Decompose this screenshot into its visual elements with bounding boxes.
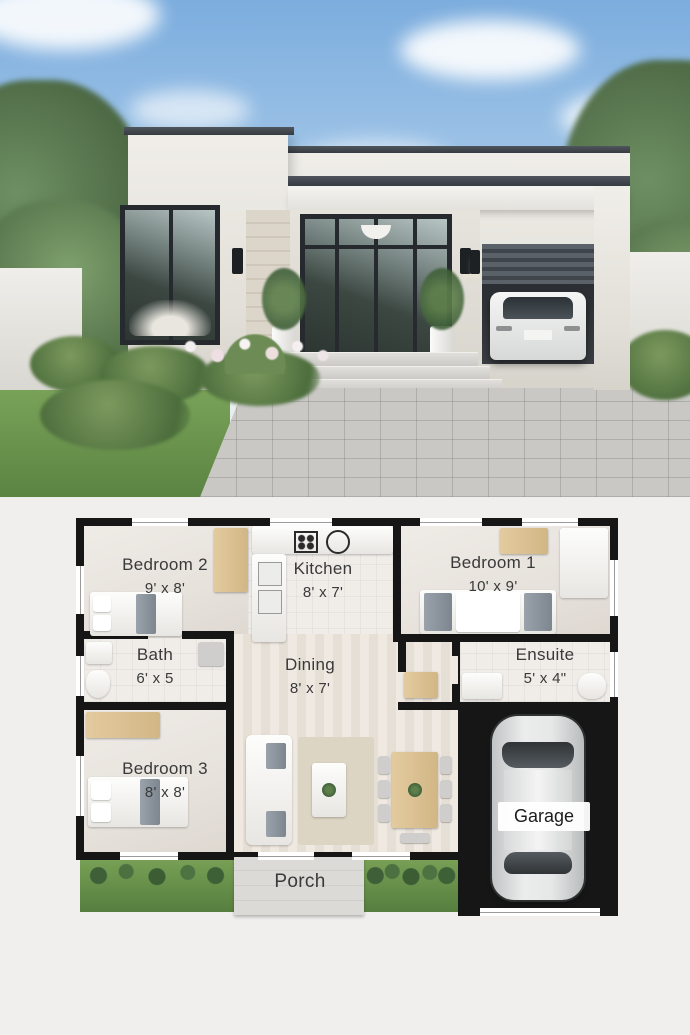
room-name: Dining bbox=[255, 655, 365, 675]
car-taillight bbox=[496, 326, 512, 331]
sink-icon bbox=[326, 530, 350, 554]
room-name: Ensuite bbox=[490, 645, 600, 665]
window bbox=[132, 518, 188, 526]
wall-ensuite-left bbox=[452, 684, 460, 702]
window bbox=[120, 852, 178, 860]
bed-pillow bbox=[93, 596, 111, 612]
car-taillight bbox=[564, 326, 580, 331]
bed-duvet bbox=[456, 592, 520, 632]
bed-pillow-gray bbox=[424, 593, 452, 631]
room-dims: 9' x 8' bbox=[90, 580, 240, 597]
plan-grass-left bbox=[80, 860, 234, 912]
wall-hall-nook bbox=[398, 642, 406, 672]
room-label-dining: Dining 8' x 7' bbox=[255, 655, 365, 697]
table-plant bbox=[322, 783, 336, 797]
window bbox=[610, 652, 618, 697]
room-label-bedroom1: Bedroom 1 10' x 9' bbox=[418, 553, 568, 595]
room-label-bath: Bath 6' x 5 bbox=[100, 645, 210, 687]
room-name: Bath bbox=[100, 645, 210, 665]
dining-table bbox=[392, 752, 438, 828]
room-label-bedroom3: Bedroom 3 8' x 8' bbox=[90, 759, 240, 801]
window bbox=[420, 518, 482, 526]
room-dims: 8' x 7' bbox=[268, 584, 378, 601]
plan-grass-right bbox=[364, 860, 458, 912]
flower-bed bbox=[170, 328, 340, 374]
hedge bbox=[40, 380, 190, 450]
room-name: Bedroom 3 bbox=[90, 759, 240, 779]
window bbox=[270, 518, 332, 526]
dining-chair bbox=[378, 804, 390, 822]
room-label-kitchen: Kitchen 8' x 7' bbox=[268, 559, 378, 601]
room-label-bedroom2: Bedroom 2 9' x 8' bbox=[90, 555, 240, 597]
room-name: Porch bbox=[240, 871, 360, 893]
dining-chair bbox=[440, 780, 452, 798]
door-mullion bbox=[374, 219, 378, 353]
room-dims: 8' x 8' bbox=[90, 784, 240, 801]
car-windshield bbox=[502, 742, 574, 768]
bed bbox=[420, 590, 556, 634]
dining-chair bbox=[378, 756, 390, 774]
dining-chair bbox=[440, 804, 452, 822]
table-plant bbox=[408, 783, 422, 797]
dining-chair bbox=[378, 780, 390, 798]
cloud bbox=[400, 20, 580, 80]
window bbox=[610, 560, 618, 616]
garage-door-plan bbox=[480, 908, 600, 916]
cloud bbox=[0, 0, 160, 50]
car-license-plate bbox=[524, 330, 552, 340]
room-name: Bedroom 1 bbox=[418, 553, 568, 573]
entry-canopy bbox=[288, 184, 630, 210]
kitchen-counter-top bbox=[252, 526, 393, 554]
door-mullion bbox=[413, 219, 417, 353]
wall-spine bbox=[226, 631, 234, 655]
canopy-fascia bbox=[288, 176, 630, 186]
room-dims: 8' x 7' bbox=[255, 680, 365, 697]
bed-blanket bbox=[136, 594, 156, 634]
sofa-throw bbox=[266, 811, 286, 837]
window bbox=[76, 566, 84, 614]
room-label-ensuite: Ensuite 5' x 4" bbox=[490, 645, 600, 687]
planter-plant bbox=[262, 268, 306, 330]
car-rear bbox=[490, 292, 586, 360]
bed-pillow bbox=[93, 615, 111, 631]
floor-plan: Bedroom 2 9' x 8' Kitchen 8' x 7' Bedroo… bbox=[0, 497, 690, 1035]
room-name: Kitchen bbox=[268, 559, 378, 579]
house-block-right-edge bbox=[594, 186, 630, 390]
porch-sliding-door bbox=[258, 852, 314, 860]
hall-closet bbox=[404, 672, 438, 698]
sofa-throw bbox=[266, 743, 286, 769]
room-label-garage: Garage bbox=[498, 802, 590, 831]
cloud bbox=[130, 90, 250, 130]
bed-pillow-gray bbox=[524, 593, 552, 631]
wall-kitchen-bedroom1 bbox=[393, 526, 401, 598]
window bbox=[352, 852, 410, 860]
wall-ensuite-left bbox=[452, 642, 460, 656]
wall-sconce bbox=[232, 248, 243, 274]
shelf bbox=[500, 528, 548, 554]
room-label-porch: Porch bbox=[240, 871, 360, 893]
window bbox=[76, 756, 84, 816]
stove-icon bbox=[294, 531, 318, 553]
exterior-photo bbox=[0, 0, 690, 497]
house-design-card: Bedroom 2 9' x 8' Kitchen 8' x 7' Bedroo… bbox=[0, 0, 690, 1035]
wall-ensuite-bottom bbox=[398, 702, 458, 710]
window bbox=[522, 518, 578, 526]
car-rear-glass bbox=[504, 852, 572, 874]
dining-chair bbox=[440, 756, 452, 774]
window bbox=[76, 656, 84, 696]
wall-bedroom1-bottom bbox=[401, 634, 610, 642]
garage-roller-door bbox=[482, 244, 594, 284]
coffee-table bbox=[312, 763, 346, 817]
room-name: Bedroom 2 bbox=[90, 555, 240, 575]
sofa bbox=[246, 735, 292, 845]
pendant-light bbox=[361, 225, 391, 239]
dresser bbox=[86, 712, 160, 738]
dining-bench bbox=[400, 833, 430, 843]
bed-pillow bbox=[91, 803, 111, 822]
car-rear-window bbox=[503, 297, 573, 319]
room-dims: 10' x 9' bbox=[418, 578, 568, 595]
roof-parapet-left bbox=[124, 127, 294, 135]
wall-kitchen-bedroom1 bbox=[393, 630, 401, 642]
bed bbox=[90, 592, 182, 636]
wall-sconce bbox=[470, 250, 480, 274]
room-dims: 5' x 4" bbox=[490, 670, 600, 687]
planter-plant bbox=[420, 268, 464, 330]
room-dims: 6' x 5 bbox=[100, 670, 210, 687]
living-window bbox=[120, 205, 220, 345]
wall-bath-bottom bbox=[84, 702, 234, 710]
